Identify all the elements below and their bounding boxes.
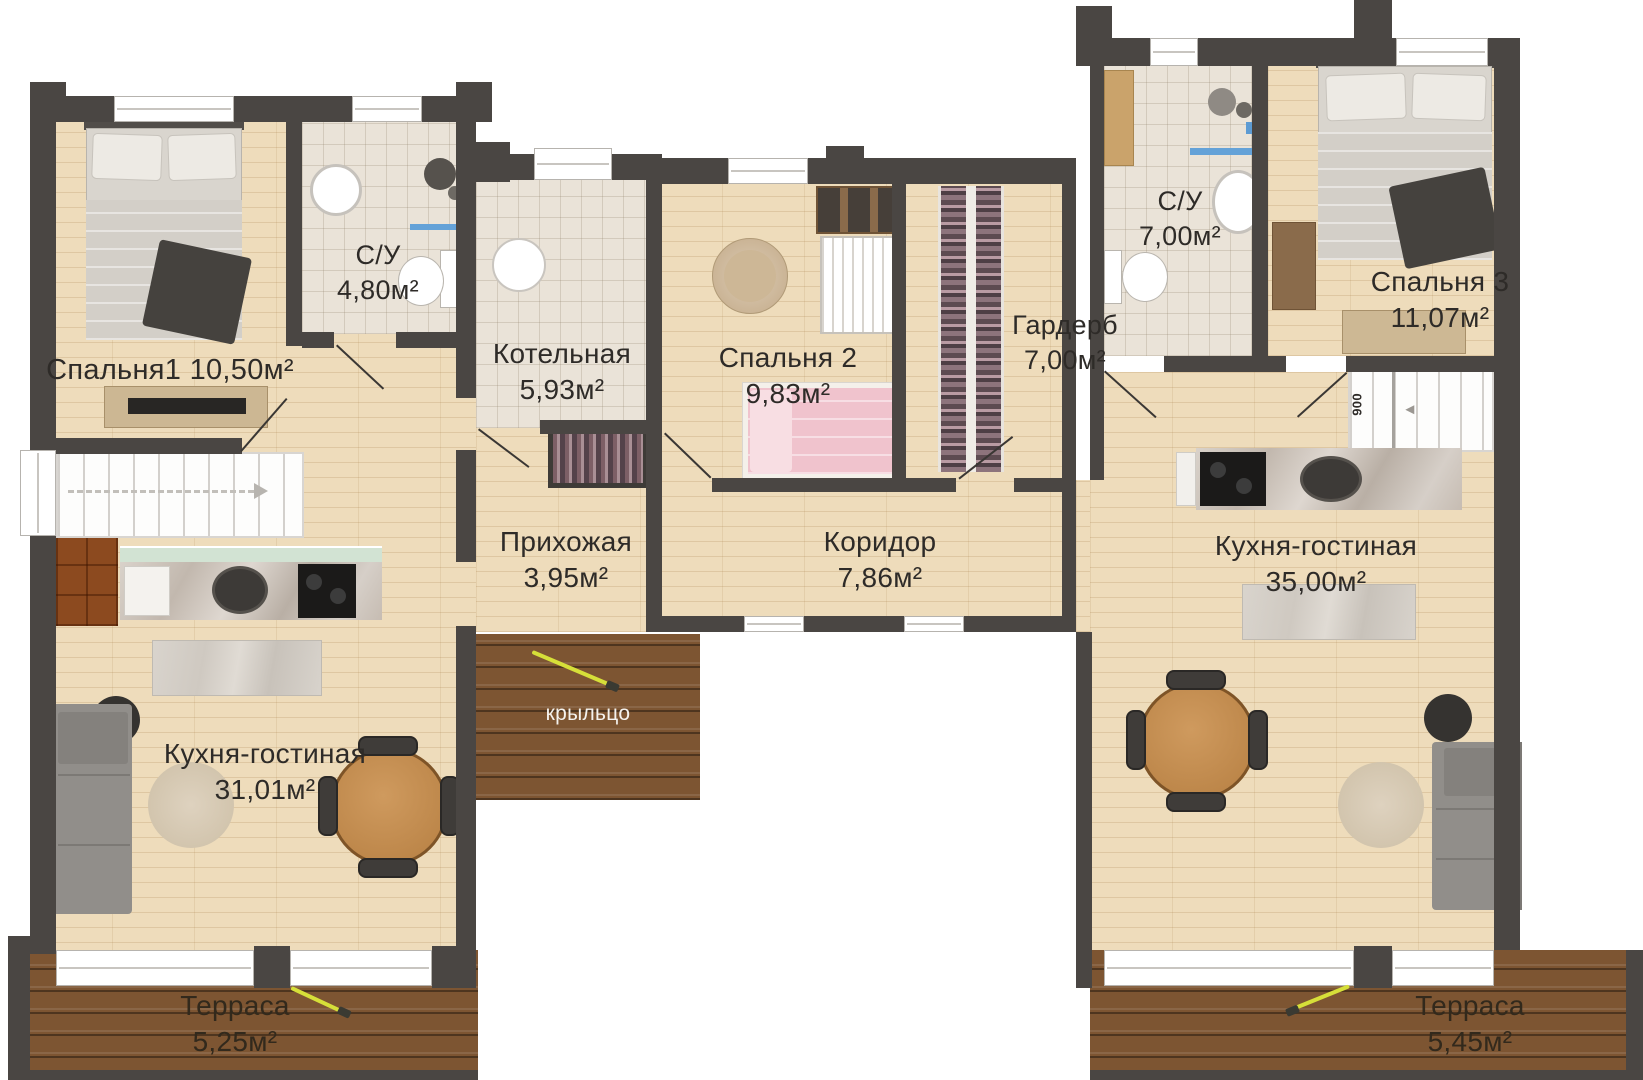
chimney — [476, 142, 510, 182]
chair — [1126, 710, 1146, 770]
room-label-porch: крыльцо — [476, 700, 700, 727]
room-name: Гардерб — [1012, 310, 1118, 340]
kitchen-left-sink — [212, 566, 268, 614]
room-area: 7,86м² — [798, 560, 962, 596]
toilet2-bowl — [1122, 252, 1168, 302]
bed1-throw — [142, 239, 252, 345]
wall — [456, 626, 476, 950]
window — [20, 450, 56, 536]
sofa-left-cushion — [58, 712, 128, 764]
room-name: Котельная — [493, 338, 631, 369]
burner-icon — [306, 574, 322, 590]
kitchen-left-splashback — [120, 546, 382, 562]
staircase-right-arrow-icon: ◄ — [1398, 400, 1422, 420]
wall — [30, 438, 242, 454]
wall — [1076, 632, 1092, 950]
shower-head-icon — [1208, 88, 1236, 116]
room-name: крыльцо — [546, 702, 631, 725]
room-label-boiler: Котельная 5,93м² — [468, 336, 656, 409]
room-name: С/У — [355, 240, 400, 270]
wall — [234, 96, 352, 122]
rug-left — [152, 640, 322, 696]
burner-icon — [330, 588, 346, 604]
room-label-kitchen-left: Кухня-гостиная 31,01м² — [140, 736, 390, 809]
window — [728, 158, 808, 184]
room-name: Прихожая — [500, 526, 632, 557]
bath2-cabinet — [1104, 70, 1134, 166]
room-name: Спальня 3 — [1371, 266, 1510, 297]
room-name: Коридор — [824, 526, 937, 557]
wall — [712, 478, 892, 492]
staircase-left-arrow-icon — [254, 483, 268, 499]
staircase-left-centerline — [68, 490, 254, 493]
cooktop-right — [1200, 452, 1266, 506]
toilet2-tank — [1104, 250, 1122, 304]
shower-head-icon — [424, 158, 456, 190]
wall — [1062, 158, 1076, 632]
door-opening — [904, 616, 964, 632]
room-label-terrace-right: Терраса 5,45м² — [1350, 988, 1590, 1061]
window — [352, 96, 422, 122]
wall — [1164, 356, 1286, 372]
wall — [30, 536, 56, 954]
bed1-pillow — [167, 133, 237, 181]
chimney — [1076, 6, 1112, 66]
round-rug-right — [1338, 762, 1424, 848]
floor-plan: Спальня1 10,50м² С/У 4,80м² Котельная 5,… — [0, 0, 1643, 1080]
terrace-post — [1354, 946, 1392, 988]
window — [534, 148, 612, 180]
cooktop-left — [298, 564, 356, 618]
crib — [820, 236, 900, 334]
room-label-bath2: С/У 7,00м² — [1110, 184, 1250, 254]
room-area: 35,00м² — [1198, 564, 1434, 600]
wall — [30, 96, 56, 452]
bath1-sink — [310, 164, 362, 216]
room-label-hallway: Прихожая 3,95м² — [476, 524, 656, 597]
room-name: С/У — [1157, 186, 1202, 216]
wall — [456, 450, 476, 562]
closet-bedroom2 — [816, 186, 900, 234]
chair — [358, 858, 418, 878]
room-name: Терраса — [1415, 990, 1525, 1021]
kitchen-right-counter-end — [1176, 452, 1196, 506]
wall — [660, 158, 728, 184]
boiler-tank — [492, 238, 546, 292]
wall — [540, 420, 646, 434]
room-label-bedroom3: Спальня 3 11,07м² — [1330, 264, 1550, 337]
room-area: 31,01м² — [140, 772, 390, 808]
room-name: Спальня 2 — [719, 342, 858, 373]
stair-landing-left — [56, 538, 118, 626]
dimension-value: 900 — [1350, 393, 1365, 416]
room-area: 5,93м² — [468, 372, 656, 408]
terrace-door-sill — [1104, 950, 1354, 986]
room-area: 5,25м² — [110, 1024, 360, 1060]
chimney — [826, 146, 864, 184]
window — [1150, 38, 1198, 66]
wardrobe-rack-shelf — [966, 186, 976, 472]
terrace-post — [254, 946, 290, 988]
room-name: Кухня-гостиная — [1215, 530, 1417, 561]
nightstand — [1272, 222, 1316, 310]
wall — [892, 478, 956, 492]
room-name: Терраса — [180, 990, 290, 1021]
room-label-bedroom2: Спальня 2 9,83м² — [690, 340, 886, 413]
chair — [1248, 710, 1268, 770]
terrace-right-bottom-edge — [1090, 1070, 1643, 1080]
wall — [1090, 66, 1104, 480]
terrace-left-edge — [8, 936, 30, 1080]
terrace-door-sill — [1392, 950, 1494, 986]
room-label-wardrobe: Гардерб 7,00м² — [998, 308, 1132, 378]
sofa-left-seam — [58, 844, 130, 846]
wall — [964, 616, 1076, 632]
room-area: 7,00м² — [1110, 219, 1250, 254]
bed3-pillow — [1411, 73, 1487, 122]
chair — [1166, 792, 1226, 812]
stair-dimension: 900 — [1350, 384, 1367, 424]
wall — [286, 122, 302, 346]
fridge — [124, 566, 170, 616]
terrace-corner — [1076, 946, 1092, 988]
room-area: 3,95м² — [476, 560, 656, 596]
wall — [302, 332, 334, 348]
kitchen-right-sink — [1300, 456, 1362, 502]
window — [114, 96, 234, 122]
room-area: 7,00м² — [998, 343, 1132, 378]
staircase-right-divider — [1392, 370, 1395, 452]
terrace-door-sill — [56, 950, 254, 986]
wall — [396, 332, 476, 348]
room-label-kitchen-right: Кухня-гостиная 35,00м² — [1198, 528, 1434, 601]
room-label-corridor: Коридор 7,86м² — [798, 524, 962, 597]
wall — [1494, 38, 1520, 950]
room-label-bath1: С/У 4,80м² — [300, 238, 456, 308]
room-area: 11,07м² — [1330, 300, 1550, 336]
terrace-right-edge — [1626, 950, 1643, 1080]
wall — [892, 184, 906, 478]
towel-bar — [1190, 148, 1258, 155]
room-area: 10,50м² — [190, 354, 294, 386]
door-opening — [744, 616, 804, 632]
terrace-corner — [432, 946, 476, 988]
wall — [804, 616, 904, 632]
room-label-terrace-left: Терраса 5,25м² — [110, 988, 360, 1061]
room-name: Кухня-гостиная — [164, 738, 366, 769]
terrace-door-sill — [290, 950, 432, 986]
room-area: 4,80м² — [300, 273, 456, 308]
dining-table-right — [1138, 682, 1256, 800]
room-name: Спальня1 — [46, 354, 181, 386]
terrace-left-bottom-edge — [8, 1070, 478, 1080]
chimney — [1354, 0, 1392, 38]
room-label-bedroom1: Спальня1 10,50м² — [30, 352, 310, 390]
armchair-seat — [724, 250, 776, 302]
room-area: 5,45м² — [1350, 1024, 1590, 1060]
bed3-pillow — [1325, 73, 1407, 122]
chair — [1166, 670, 1226, 690]
room-area: 9,83м² — [690, 376, 886, 412]
burner-icon — [1236, 478, 1252, 494]
burner-icon — [1210, 462, 1226, 478]
sofa-left-seam — [58, 774, 130, 776]
bed1-pillow — [91, 133, 163, 181]
wall — [660, 616, 744, 632]
window — [1396, 38, 1488, 66]
wall — [1252, 66, 1268, 356]
shower-knob-icon — [1236, 102, 1252, 118]
side-table-right — [1424, 694, 1472, 742]
wall — [1198, 38, 1396, 66]
tv — [128, 398, 246, 414]
